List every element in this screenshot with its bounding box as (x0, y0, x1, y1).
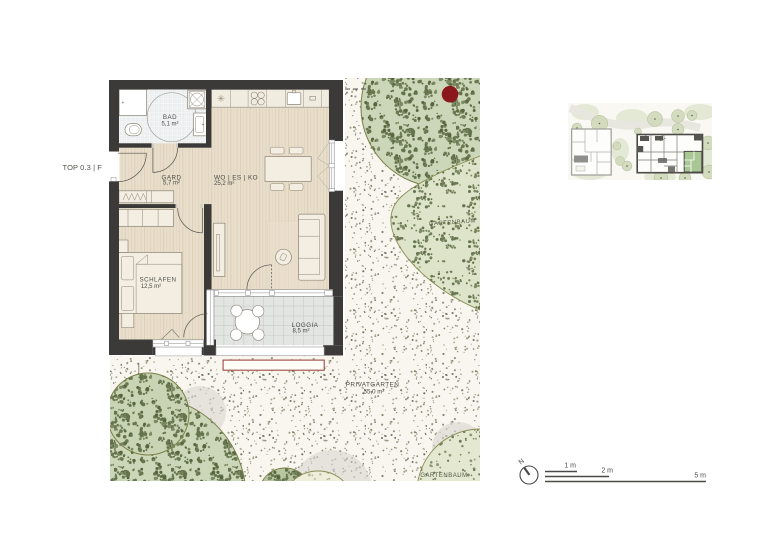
svg-text:1 m: 1 m (564, 463, 576, 470)
svg-text:8,5 m²: 8,5 m² (292, 328, 309, 334)
svg-text:PRIVATGARTEN: PRIVATGARTEN (346, 382, 399, 389)
svg-text:5 m: 5 m (694, 473, 706, 480)
svg-text:55,0 m²: 55,0 m² (364, 389, 385, 396)
svg-text:5,7 m²: 5,7 m² (163, 181, 180, 187)
svg-text:5,1 m²: 5,1 m² (161, 121, 178, 127)
svg-text:GARTENBAUM: GARTENBAUM (420, 473, 467, 479)
svg-text:25,2 m²: 25,2 m² (214, 181, 234, 187)
svg-text:TOP 0.3 | F: TOP 0.3 | F (63, 163, 103, 172)
svg-text:SCHLAFEN: SCHLAFEN (139, 277, 176, 284)
svg-text:2 m: 2 m (601, 468, 613, 475)
svg-text:12,5 m²: 12,5 m² (141, 284, 161, 290)
svg-text:BAD: BAD (163, 114, 177, 121)
